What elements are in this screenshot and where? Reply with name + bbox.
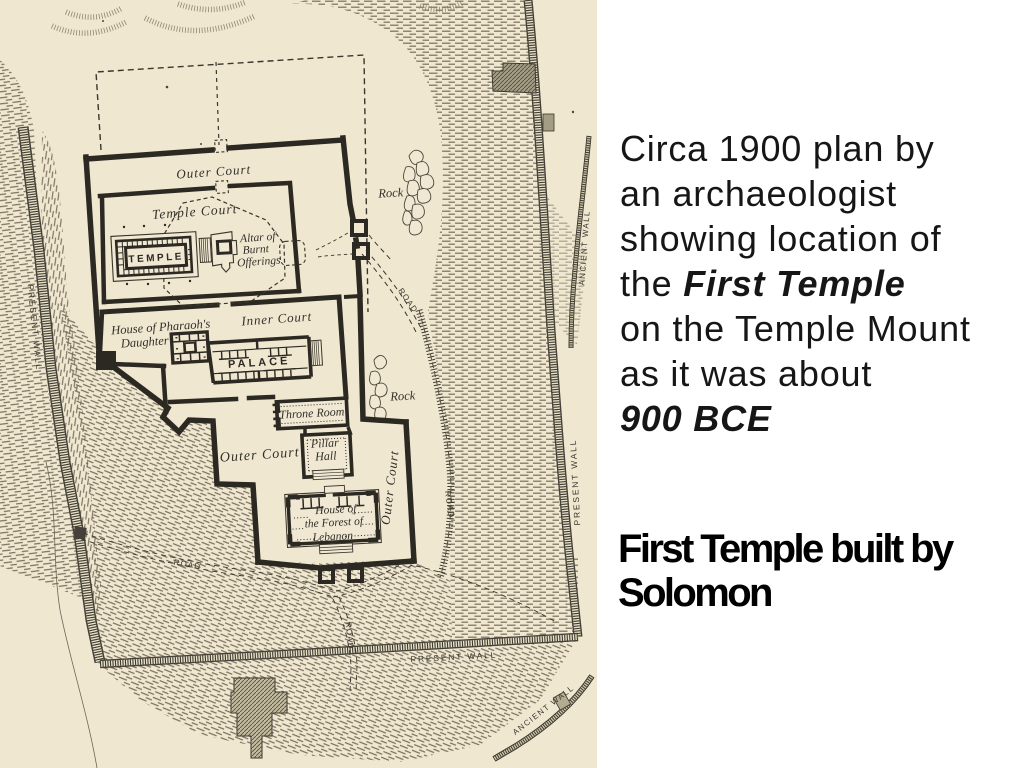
svg-text:House of: House of xyxy=(314,503,359,517)
svg-text:Hall: Hall xyxy=(314,448,338,463)
svg-text:Lebanon: Lebanon xyxy=(311,530,353,544)
svg-text:Rock: Rock xyxy=(377,185,404,200)
svg-text:Rock: Rock xyxy=(389,388,416,403)
